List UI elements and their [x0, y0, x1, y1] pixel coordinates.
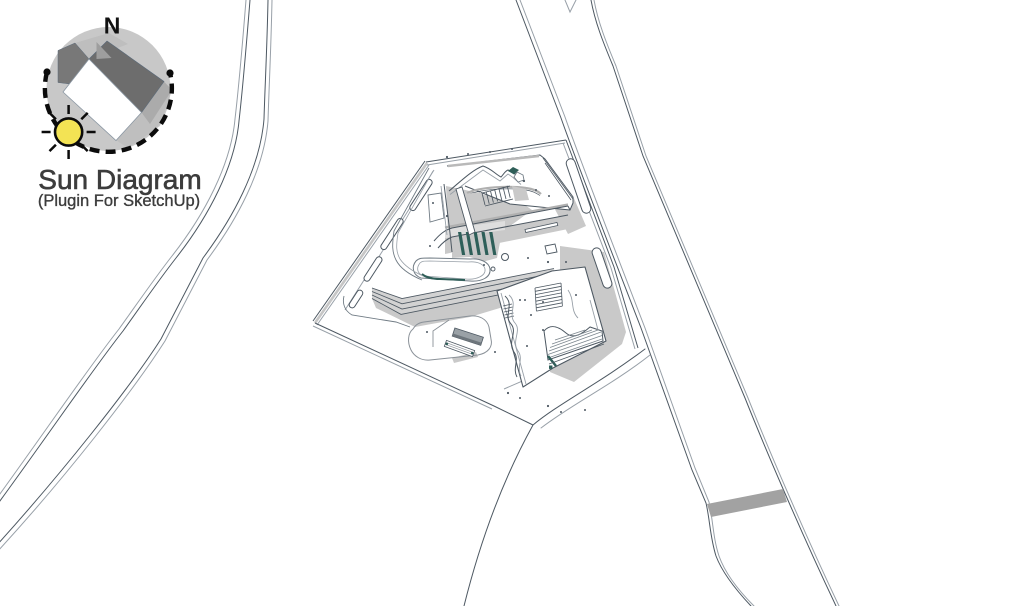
svg-text:N: N [104, 13, 121, 39]
svg-text:(Plugin For SketchUp): (Plugin For SketchUp) [38, 192, 200, 210]
svg-text:Sun Diagram: Sun Diagram [38, 164, 201, 195]
